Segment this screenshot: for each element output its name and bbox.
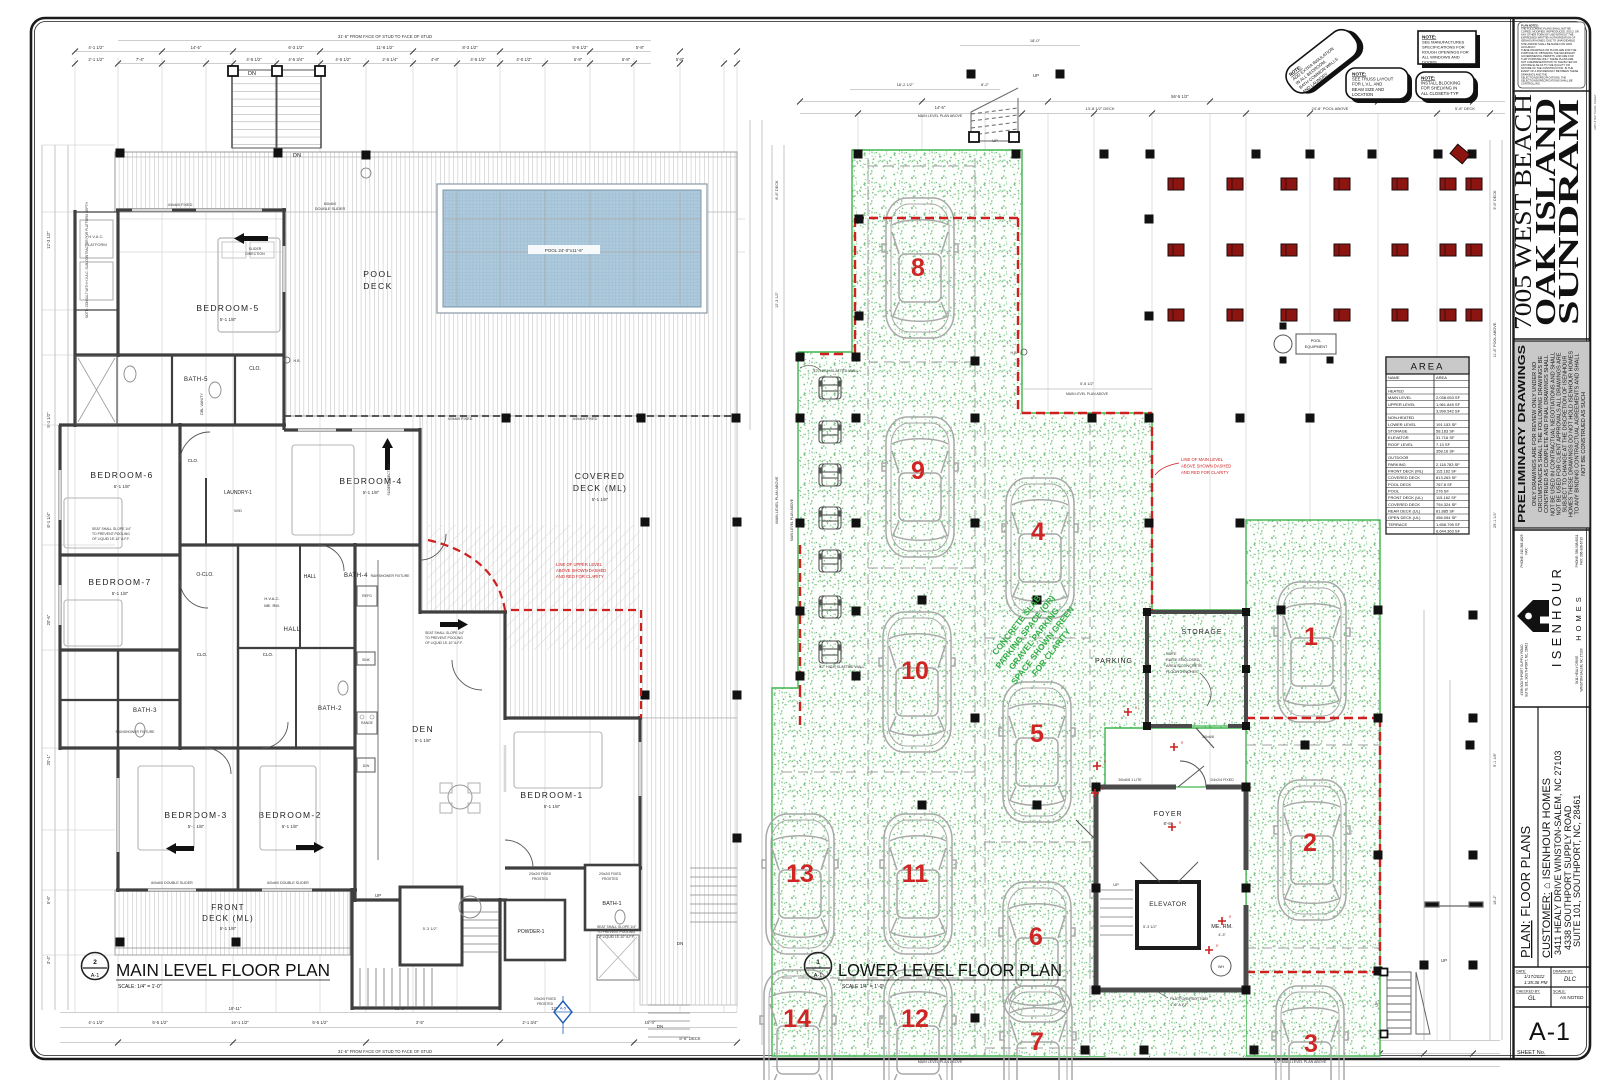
svg-text:5'-1 1/8": 5'-1 1/8" (415, 738, 432, 743)
svg-text:DIRECTION: DIRECTION (245, 252, 265, 256)
svg-text:56'-5 1/2": 56'-5 1/2" (1171, 94, 1189, 99)
svg-text:6/0x6/0: 6/0x6/0 (324, 202, 336, 206)
svg-text:DBL VANITY: DBL VANITY (200, 393, 204, 415)
svg-text:NOTE: NOTE (1166, 652, 1177, 656)
svg-text:6/0x6/0 DOUBLE SLIDER: 6/0x6/0 DOUBLE SLIDER (267, 881, 309, 885)
svg-text:11'-8" POOL ABOVE: 11'-8" POOL ABOVE (1493, 322, 1497, 357)
svg-text:8,644.363 SF: 8,644.363 SF (1436, 529, 1461, 534)
svg-text:58.183 SF: 58.183 SF (1436, 429, 1455, 434)
svg-text:3/0x6/8 1 LITE: 3/0x6/8 1 LITE (1118, 778, 1142, 782)
svg-text:813.263 SF: 813.263 SF (1436, 475, 1457, 480)
svg-text:358.16 SF: 358.16 SF (1436, 449, 1455, 454)
svg-text:2: 2 (93, 959, 97, 966)
svg-text:3/0x6/8: 3/0x6/8 (1202, 735, 1214, 739)
svg-text:CLO.: CLO. (197, 652, 208, 657)
svg-text:WINSTON-SALEM, NC 27103: WINSTON-SALEM, NC 27103 (1580, 648, 1584, 691)
svg-text:BATH-5: BATH-5 (184, 377, 208, 383)
svg-text:115.162 SF: 115.162 SF (1436, 495, 1457, 500)
svg-text:NON-HEATED: NON-HEATED (1388, 415, 1414, 420)
svg-text:CHECKED BY:: CHECKED BY: (1516, 990, 1540, 994)
svg-text:191.153 SF: 191.153 SF (1436, 422, 1457, 427)
svg-text:AREA: AREA (1436, 375, 1447, 380)
svg-text:AREA'S CONCRETE: AREA'S CONCRETE (1166, 664, 1202, 668)
svg-text:TO ANY BINDING CONTRACTUAL AGR: TO ANY BINDING CONTRACTUAL AGREEMENTS AN… (1575, 353, 1581, 514)
svg-text:DOUBLE SLIDER: DOUBLE SLIDER (315, 207, 346, 211)
svg-text:ELEVATOR: ELEVATOR (1388, 435, 1409, 440)
svg-text:18'-2 1/2": 18'-2 1/2" (897, 82, 914, 87)
svg-text:5'-3 1/2": 5'-3 1/2" (1143, 925, 1158, 929)
svg-text:DOORS: DOORS (1422, 60, 1437, 65)
svg-text:DLC: DLC (1564, 977, 1577, 983)
svg-text:5'-1 1/8": 5'-1 1/8" (114, 484, 131, 489)
svg-text:NOT BE USED FOR CLIENT APPROVA: NOT BE USED FOR CLIENT APPROVALS ALL DRA… (1556, 352, 1562, 515)
svg-text:1:35:36 PM: 1:35:36 PM (1524, 980, 1548, 985)
svg-text:2,118.783 SF: 2,118.783 SF (1436, 462, 1460, 467)
svg-text:4/0x6/0 FIXED: 4/0x6/0 FIXED (448, 417, 473, 421)
svg-text:20'-1": 20'-1" (46, 754, 51, 765)
svg-text:CLO.: CLO. (263, 652, 274, 657)
svg-text:FRONT DECK (ML): FRONT DECK (ML) (1388, 469, 1424, 474)
svg-text:5'-8": 5'-8" (676, 57, 685, 62)
svg-text:UPPER LEVEL: UPPER LEVEL (1388, 402, 1416, 407)
svg-text:1/17/2022: 1/17/2022 (1524, 974, 1545, 979)
svg-text:13'-8 1/2" DECK: 13'-8 1/2" DECK (1085, 106, 1114, 111)
svg-text:5'-5 1/2": 5'-5 1/2" (312, 1020, 328, 1025)
svg-text:12'-3 1/2": 12'-3 1/2" (46, 231, 51, 249)
svg-text:7'-4": 7'-4" (136, 57, 145, 62)
svg-text:ELEVATOR: ELEVATOR (1149, 901, 1187, 908)
svg-text:754.324 SF: 754.324 SF (1436, 502, 1457, 507)
svg-text:DECK (ML): DECK (ML) (202, 914, 254, 923)
svg-text:SUBJECT TO CHANGE AT THE DISCR: SUBJECT TO CHANGE AT THE DISCRETION OF I… (1563, 356, 1569, 513)
svg-text:UP: UP (1033, 73, 1039, 78)
svg-text:4: 4 (1031, 518, 1045, 546)
svg-text:276 SF: 276 SF (1436, 489, 1449, 494)
svg-text:CLO.: CLO. (188, 458, 199, 463)
svg-text:D/W: D/W (363, 764, 370, 768)
svg-text:4'-5 1/2": 4'-5 1/2" (246, 57, 262, 62)
svg-text:2'-1 3/4": 2'-1 3/4" (522, 1020, 538, 1025)
svg-text:ISENHOUR: ISENHOUR (1549, 565, 1564, 667)
svg-text:5'-8": 5'-8" (622, 57, 631, 62)
svg-text:LOWER LEVEL FLOOR PLAN: LOWER LEVEL FLOOR PLAN (838, 960, 1062, 980)
svg-text:3'-5": 3'-5" (416, 1020, 425, 1025)
svg-text:PRELIMINARY DRAWINGS: PRELIMINARY DRAWINGS (1517, 345, 1528, 523)
svg-text:5'-1 1/8": 5'-1 1/8" (188, 824, 205, 829)
svg-text:LOWER LEVEL: LOWER LEVEL (1388, 422, 1417, 427)
svg-text:5'-1 1/8": 5'-1 1/8" (112, 591, 129, 596)
svg-text:BATH-4: BATH-4 (344, 573, 368, 579)
svg-text:OF LIQUID 15'-10" A.F.F.: OF LIQUID 15'-10" A.F.F. (92, 537, 130, 541)
svg-text:2,038.053 SF: 2,038.053 SF (1436, 395, 1461, 400)
svg-text:14'-5": 14'-5" (191, 45, 202, 50)
svg-text:ALL CLOSETS-TYP: ALL CLOSETS-TYP (1421, 91, 1459, 96)
svg-text:POWDER-1: POWDER-1 (518, 929, 545, 935)
svg-text:4'-3": 4'-3" (1218, 933, 1226, 937)
svg-text:AND RED FOR CLARITY: AND RED FOR CLARITY (556, 574, 604, 579)
svg-text:4'-5 3/4": 4'-5 3/4" (288, 57, 304, 62)
svg-text:16'-1 1/2": 16'-1 1/2" (231, 1020, 249, 1025)
svg-text:MAIN LEVEL PLAN ABOVE: MAIN LEVEL PLAN ABOVE (918, 1060, 963, 1064)
svg-text:HALL: HALL (283, 627, 300, 633)
svg-text:SUITE 101, SOUTHPORT, NC, 2846: SUITE 101, SOUTHPORT, NC, 28461 (1525, 643, 1529, 697)
svg-text:10: 10 (901, 657, 929, 685)
svg-text:9: 9 (911, 457, 925, 485)
svg-text:O-CLO.: O-CLO. (196, 572, 213, 578)
svg-text:SUNDRAM: SUNDRAM (1553, 99, 1585, 325)
svg-text:5'-8 1/2": 5'-8 1/2" (572, 45, 588, 50)
svg-text:FRONT DECK (UL): FRONT DECK (UL) (1388, 495, 1423, 500)
svg-text:DN: DN (657, 1024, 664, 1029)
svg-text:DATE:: DATE: (1516, 970, 1526, 974)
svg-text:9': 9' (1229, 915, 1232, 919)
svg-text:UP: UP (1374, 1001, 1379, 1007)
svg-text:OPEN DECK (UL): OPEN DECK (UL) (1388, 515, 1421, 520)
svg-text:5'-6": 5'-6" (46, 895, 51, 904)
svg-text:PARKING: PARKING (1095, 658, 1133, 665)
svg-text:9': 9' (1135, 706, 1138, 710)
svg-text:9'-6" DECK: 9'-6" DECK (1493, 190, 1497, 210)
svg-text:DEN: DEN (412, 724, 434, 734)
svg-text:FROSTED: FROSTED (602, 877, 619, 881)
svg-text:FAX: 336-908-6713: FAX: 336-908-6713 (1580, 537, 1584, 565)
svg-text:2'-1 1/2": 2'-1 1/2" (88, 57, 104, 62)
svg-text:MAIN LEVEL PLAN ABOVE: MAIN LEVEL PLAN ABOVE (775, 476, 779, 524)
svg-text:20'-6": 20'-6" (46, 614, 51, 625)
svg-text:24'-8" POOL ABOVE: 24'-8" POOL ABOVE (1312, 106, 1349, 111)
svg-text:4/0x6/0 FIXED: 4/0x6/0 FIXED (168, 203, 193, 207)
svg-text:STORAGE: STORAGE (1388, 429, 1408, 434)
svg-text:OF LIQUID 15'-10" A.F.F.: OF LIQUID 15'-10" A.F.F. (425, 641, 463, 645)
svg-text:FOYER: FOYER (1153, 811, 1182, 818)
svg-text:FROSTED: FROSTED (537, 1002, 554, 1006)
svg-text:115.162 SF: 115.162 SF (1436, 469, 1457, 474)
svg-text:2/0x2/0 FIXED: 2/0x2/0 FIXED (534, 997, 557, 1001)
svg-text:ABOVE SHOWN DASHED: ABOVE SHOWN DASHED (556, 568, 606, 573)
svg-text:3'-4": 3'-4" (46, 955, 51, 964)
svg-text:4'-8": 4'-8" (431, 57, 440, 62)
svg-text:DRAWN BY:: DRAWN BY: (1553, 970, 1573, 974)
svg-text:DN: DN (677, 941, 684, 946)
svg-text:AND RED FOR CLARITY: AND RED FOR CLARITY (1181, 470, 1229, 475)
svg-text:4/0x6/0 FIXED: 4/0x6/0 FIXED (573, 417, 598, 421)
svg-text:PLATFORM BOTTOM: PLATFORM BOTTOM (1170, 997, 1208, 1001)
svg-text:BEDROOM-5: BEDROOM-5 (196, 303, 259, 313)
svg-text:5'-1 1/8": 5'-1 1/8" (592, 497, 609, 502)
svg-text:AREA: AREA (1411, 362, 1445, 373)
svg-text:18'-11": 18'-11" (229, 1006, 242, 1011)
svg-text:RANGE: RANGE (361, 721, 374, 725)
svg-text:8'-3 1/2": 8'-3 1/2" (462, 45, 478, 50)
svg-text:ABOVE SHOWN DASHED: ABOVE SHOWN DASHED (1181, 464, 1231, 469)
svg-text:2/4x2/4 FIXED: 2/4x2/4 FIXED (1210, 778, 1234, 782)
svg-text:DECK (ML): DECK (ML) (573, 483, 627, 493)
svg-text:456.054 SF: 456.054 SF (1436, 515, 1457, 520)
svg-text:FLOOR 2 INCHES: FLOOR 2 INCHES (1166, 670, 1198, 674)
svg-text:SCALE:: SCALE: (1553, 990, 1566, 994)
svg-text:COVERED: COVERED (575, 471, 625, 481)
svg-text:W/D: W/D (234, 508, 242, 513)
svg-text:3411 HEALY DRIVE: 3411 HEALY DRIVE (1575, 656, 1579, 685)
svg-text:4338 SOUTHPORT SUPPLY ROAD: 4338 SOUTHPORT SUPPLY ROAD (1520, 644, 1524, 696)
svg-text:3,999.542 SF: 3,999.542 SF (1436, 409, 1461, 414)
svg-text:POOL: POOL (1388, 489, 1400, 494)
svg-text:6: 6 (1029, 923, 1043, 951)
svg-text:12'-3 1/2": 12'-3 1/2" (775, 291, 779, 308)
svg-text:NAME: NAME (1388, 375, 1400, 380)
svg-text:8'-6" DECK: 8'-6" DECK (775, 180, 779, 200)
svg-text:BEDROOM-1: BEDROOM-1 (520, 790, 583, 800)
svg-text:MAIN LEVEL PLAN ABOVE: MAIN LEVEL PLAN ABOVE (790, 498, 794, 541)
svg-text:HOMES: HOMES (1574, 593, 1583, 641)
svg-text:31'-5" FROM FACE OF STUD TO FA: 31'-5" FROM FACE OF STUD TO FACE OF STUD (338, 1049, 432, 1054)
svg-text:4'-0 1/2": 4'-0 1/2" (516, 57, 532, 62)
svg-text:5'-8": 5'-8" (636, 45, 645, 50)
svg-text:1,658.795 SF: 1,658.795 SF (1436, 522, 1461, 527)
svg-text:UP: UP (375, 893, 381, 898)
svg-text:SLIDER DIRECTION: SLIDER DIRECTION (387, 464, 391, 496)
svg-text:81.885 SF: 81.885 SF (1436, 509, 1455, 514)
svg-text:POOL: POOL (1311, 339, 1322, 343)
svg-text:2: 2 (1303, 829, 1317, 857)
svg-text:BATH-2: BATH-2 (318, 706, 342, 712)
svg-text:SUITE 101, SOUTHPORT, NC, 2846: SUITE 101, SOUTHPORT, NC, 28461 (1572, 795, 1582, 947)
svg-text:TO PREVENT POOLING: TO PREVENT POOLING (425, 636, 463, 640)
svg-text:PLAN: FLOOR PLANS: PLAN: FLOOR PLANS (1518, 825, 1533, 958)
svg-text:UP: UP (1441, 958, 1447, 963)
svg-text:REAR DECK (UL): REAR DECK (UL) (1388, 509, 1421, 514)
svg-text:2'-5 1/4": 2'-5 1/4" (382, 57, 398, 62)
svg-text:TERRACE: TERRACE (1388, 522, 1407, 527)
svg-text:9': 9' (1179, 821, 1182, 825)
svg-text:9': 9' (1181, 741, 1184, 745)
svg-text:WH: WH (1218, 965, 1225, 969)
svg-text:POOL 24'-0"x11'-6": POOL 24'-0"x11'-6" (545, 248, 584, 253)
svg-text:6/0x6/0 DOUBLE SLIDER: 6/0x6/0 DOUBLE SLIDER (151, 881, 193, 885)
svg-text:HALL: HALL (304, 574, 317, 580)
svg-text:SEAT SHALL SLOPE 1/4": SEAT SHALL SLOPE 1/4" (597, 925, 637, 929)
svg-text:7.13 SF: 7.13 SF (1436, 442, 1451, 447)
svg-text:CONSTRUED AS COMPLETE AND FINA: CONSTRUED AS COMPLETE AND FINAL DRAWINGS… (1544, 355, 1550, 513)
svg-text:SEAT SHALL SLOPE 1/4": SEAT SHALL SLOPE 1/4" (92, 527, 132, 531)
svg-text:14: 14 (783, 1005, 811, 1033)
svg-text:8'-2": 8'-2" (981, 82, 990, 87)
svg-text:12: 12 (901, 1005, 929, 1033)
svg-text:31'-5" FROM FACE OF STUD TO FA: 31'-5" FROM FACE OF STUD TO FACE OF STUD (338, 34, 432, 39)
svg-text:5'-1 1/8": 5'-1 1/8" (544, 804, 561, 809)
svg-text:CONTROLLING.: CONTROLLING. (1521, 81, 1541, 85)
svg-text:EQUIPMENT: EQUIPMENT (1305, 345, 1328, 349)
svg-text:4'-5 1/2": 4'-5 1/2" (470, 57, 486, 62)
svg-text:HEATED: HEATED (1388, 389, 1404, 394)
svg-text:LINE OF MAIN LEVEL: LINE OF MAIN LEVEL (1181, 457, 1224, 462)
svg-text:REFG: REFG (362, 594, 372, 598)
svg-text:SEAT SHALL SLOPE 1/4": SEAT SHALL SLOPE 1/4" (425, 631, 465, 635)
svg-text:MAIN LEVEL FLOOR PLAN: MAIN LEVEL FLOOR PLAN (116, 960, 330, 980)
svg-text:POOL: POOL (363, 269, 393, 279)
svg-text:8: 8 (911, 254, 925, 282)
svg-text:SINK: SINK (362, 658, 370, 662)
svg-text:H.V.A.C.: H.V.A.C. (264, 596, 279, 601)
svg-text:COVERED DECK: COVERED DECK (1388, 502, 1420, 507)
svg-text:5'-1 1/8": 5'-1 1/8" (220, 317, 237, 322)
svg-text:NOT BE USED IN CONTRACTUAL NEG: NOT BE USED IN CONTRACTUAL NEGOTIATIONS … (1550, 352, 1556, 516)
svg-text:ARCHITECTURAL SHEET: ARCHITECTURAL SHEET (1593, 94, 1597, 130)
svg-text:SLIDER: SLIDER (249, 247, 262, 251)
svg-text:9': 9' (1102, 787, 1105, 791)
svg-text:1: 1 (816, 959, 820, 966)
svg-text:ROOF LEVEL: ROOF LEVEL (1388, 442, 1414, 447)
svg-text:9'-1 1/8": 9'-1 1/8" (1493, 752, 1497, 767)
svg-text:31.716 SF: 31.716 SF (1436, 435, 1455, 440)
svg-text:4'-5 1/2": 4'-5 1/2" (335, 57, 351, 62)
svg-text:BEDROOM-7: BEDROOM-7 (88, 577, 151, 587)
svg-text:42" HIGH SLATTED WALL: 42" HIGH SLATTED WALL (819, 665, 864, 669)
svg-text:NOTE: CONSULT WITH H.V.A.C. SU: NOTE: CONSULT WITH H.V.A.C. SUB-CONTRACT… (85, 201, 89, 318)
svg-text:4'-1 1/2": 4'-1 1/2" (88, 45, 104, 50)
svg-text:A-1: A-1 (91, 973, 100, 979)
svg-text:BEDROOM-2: BEDROOM-2 (258, 810, 321, 820)
svg-text:OUTDOOR: OUTDOOR (1388, 455, 1409, 460)
svg-text:18'-0": 18'-0" (1030, 38, 1041, 43)
svg-text:5'-3 1/2": 5'-3 1/2" (423, 926, 438, 931)
svg-text:7: 7 (1030, 1028, 1044, 1056)
svg-text:H.V.A.C.: H.V.A.C. (88, 234, 103, 239)
svg-text:6'-3 1/2": 6'-3 1/2" (288, 45, 304, 50)
svg-text:STORAGE: STORAGE (1181, 629, 1222, 636)
svg-text:NOT BE CONSTRUED AS SUCH: NOT BE CONSTRUED AS SUCH (1581, 392, 1587, 476)
svg-text:25'-1 1/4": 25'-1 1/4" (1493, 511, 1497, 528)
svg-text:BEDROOM-4: BEDROOM-4 (339, 476, 402, 486)
svg-text:5'-8 1/2": 5'-8 1/2" (1080, 382, 1095, 386)
svg-text:BATH-1: BATH-1 (602, 901, 621, 907)
svg-text:AS NOTED: AS NOTED (1560, 995, 1584, 1000)
svg-text:8'-1 1/4": 8'-1 1/4" (46, 512, 51, 528)
svg-text:PARKING: PARKING (1388, 462, 1406, 467)
svg-text:HOMES THESE DRAWINGS DO NOT HO: HOMES THESE DRAWINGS DO NOT HOLD ISENHOU… (1569, 351, 1575, 517)
svg-text:5'-1 1/2": 5'-1 1/2" (46, 412, 51, 428)
svg-text:OF LIQUID 15'-10" A.F.F.: OF LIQUID 15'-10" A.F.F. (597, 935, 635, 939)
svg-text:RAINSHOWER FIXTURE: RAINSHOWER FIXTURE (371, 574, 411, 578)
svg-text:4'-1 1/2": 4'-1 1/2" (88, 1020, 104, 1025)
svg-text:UP: UP (992, 138, 998, 143)
svg-text:RAISE ENCLOSED: RAISE ENCLOSED (1166, 658, 1200, 662)
svg-text:A-1: A-1 (814, 973, 823, 979)
svg-text:LINE OF UPPER LEVEL: LINE OF UPPER LEVEL (556, 562, 603, 567)
svg-text:A-5: A-5 (560, 1006, 567, 1011)
svg-text:14'-5": 14'-5" (935, 105, 946, 110)
svg-text:SCALE 1/4" = 1'-0": SCALE 1/4" = 1'-0" (842, 984, 884, 990)
svg-text:FRONT: FRONT (211, 903, 245, 912)
svg-text:CUSTOMER: ⌂ ISENHOUR HOMES: CUSTOMER: ⌂ ISENHOUR HOMES (1541, 778, 1553, 958)
svg-text:3411 HEALY DRIVE WINSTON-SALEM: 3411 HEALY DRIVE WINSTON-SALEM, NC 27103 (1553, 751, 1563, 955)
svg-text:PHONE: 910-363-1825: PHONE: 910-363-1825 (1520, 534, 1524, 567)
svg-text:42" HIGH SLATTED WALL: 42" HIGH SLATTED WALL (813, 369, 858, 373)
svg-text:ME. RM.: ME. RM. (264, 603, 280, 608)
svg-text:1: 1 (1304, 623, 1318, 651)
svg-text:2/0x2/0 FIXED: 2/0x2/0 FIXED (599, 872, 622, 876)
svg-text:RAINSHOWER FIXTURE: RAINSHOWER FIXTURE (116, 730, 156, 734)
svg-text:BEDROOM-3: BEDROOM-3 (164, 810, 227, 820)
svg-text:POOL DECK: POOL DECK (1388, 482, 1412, 487)
svg-text:BATH-3: BATH-3 (133, 708, 157, 714)
svg-text:5'-8" DECK: 5'-8" DECK (1455, 106, 1476, 111)
svg-text:9': 9' (1104, 760, 1107, 764)
svg-text:MAIN LEVEL: MAIN LEVEL (1388, 395, 1412, 400)
svg-text:1,961.845 SF: 1,961.845 SF (1436, 402, 1461, 407)
svg-text:2/0x2/0 FIXED: 2/0x2/0 FIXED (529, 872, 552, 876)
svg-text:SHEET No.: SHEET No. (1517, 1050, 1546, 1056)
svg-text:ONLY DRAWINGS ARE FOR REVIEW O: ONLY DRAWINGS ARE FOR REVIEW ONLY UNDER … (1532, 361, 1538, 506)
svg-text:GL: GL (1528, 996, 1536, 1002)
svg-text:TO PREVENT POOLING: TO PREVENT POOLING (92, 532, 130, 536)
svg-text:MAIN LEVEL PLAN ABOVE: MAIN LEVEL PLAN ABOVE (1066, 392, 1109, 396)
svg-text:5'-1 1/8": 5'-1 1/8" (363, 490, 380, 495)
svg-text:LOCATION: LOCATION (1352, 92, 1373, 97)
svg-text:3: 3 (1304, 1030, 1318, 1058)
svg-text:CLO.: CLO. (249, 366, 261, 372)
svg-text:LAUNDRY-1: LAUNDRY-1 (224, 490, 252, 496)
svg-text:11'-8 1/2": 11'-8 1/2" (376, 45, 394, 50)
svg-text:H.B.: H.B. (1011, 351, 1018, 355)
svg-text:SCALE: 1/4" = 1'-0": SCALE: 1/4" = 1'-0" (118, 984, 162, 990)
svg-text:DECK: DECK (363, 281, 393, 291)
svg-text:767.8 SF: 767.8 SF (1436, 482, 1453, 487)
svg-text:TO PREVENT POOLING: TO PREVENT POOLING (597, 930, 635, 934)
svg-text:5'-1 1/8": 5'-1 1/8" (282, 824, 299, 829)
svg-text:H.B.: H.B. (294, 359, 301, 363)
svg-text:A-1: A-1 (1529, 1018, 1571, 1046)
svg-text:5'-1 1/8": 5'-1 1/8" (220, 926, 237, 931)
svg-text:5: 5 (1030, 720, 1044, 748)
svg-text:DN: DN (293, 153, 301, 159)
svg-text:BEDROOM-6: BEDROOM-6 (90, 470, 153, 480)
svg-text:PHONE: 336-908-6011: PHONE: 336-908-6011 (1575, 534, 1579, 567)
svg-text:11: 11 (902, 860, 929, 888)
svg-text:1'-0" MAIN LEVEL PLAN ABOVE: 1'-0" MAIN LEVEL PLAN ABOVE (1274, 1060, 1327, 1064)
svg-text:13: 13 (786, 860, 814, 888)
svg-text:CIRCUMSTANCES SHALL THE FOLLOW: CIRCUMSTANCES SHALL THE FOLLOWING DRAWIN… (1538, 356, 1544, 513)
svg-text:16'-2": 16'-2" (1493, 895, 1497, 905)
svg-text:UP: UP (1113, 882, 1119, 887)
svg-text:5'-8": 5'-8" (574, 57, 583, 62)
svg-text:9': 9' (1216, 944, 1219, 948)
svg-text:FROSTED: FROSTED (532, 877, 549, 881)
svg-text:FAX:: FAX: (1525, 547, 1529, 554)
svg-text:4'-0" A.F.F.: 4'-0" A.F.F. (1170, 1003, 1188, 1007)
svg-text:COVERED DECK: COVERED DECK (1388, 475, 1420, 480)
svg-text:5'-5 1/2": 5'-5 1/2" (152, 1020, 168, 1025)
svg-text:MAIN LEVEL PLAN ABOVE: MAIN LEVEL PLAN ABOVE (918, 114, 963, 118)
svg-text:DN: DN (248, 71, 256, 77)
